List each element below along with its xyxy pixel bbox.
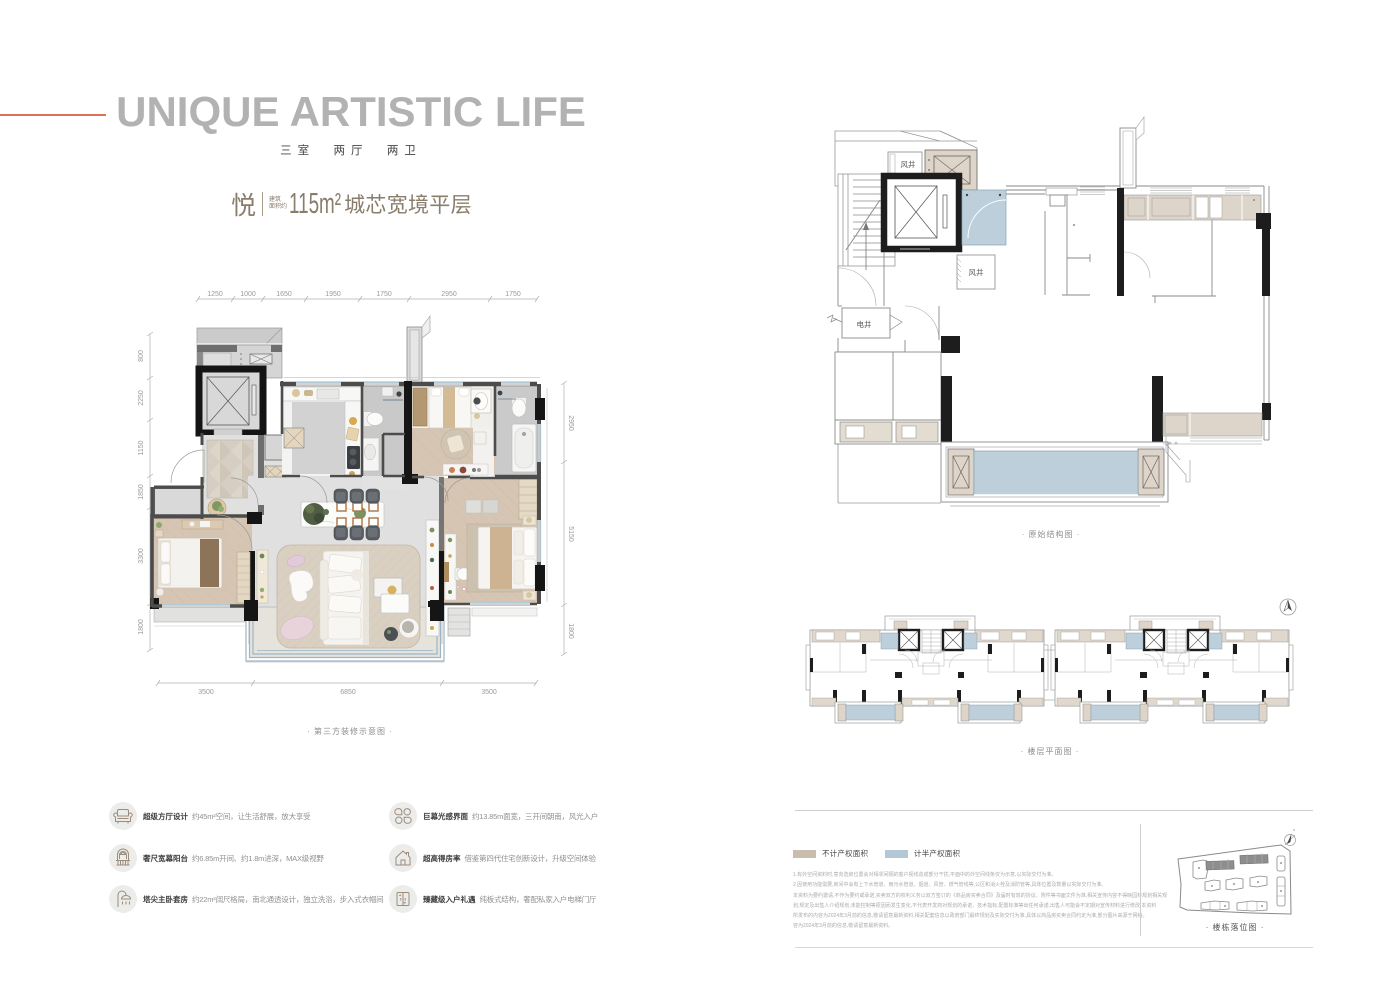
- svg-text:5150: 5150: [567, 526, 574, 542]
- svg-text:3500: 3500: [481, 689, 497, 695]
- svg-text:1800: 1800: [567, 623, 574, 639]
- svg-text:3500: 3500: [198, 689, 214, 695]
- svg-text:1000: 1000: [240, 291, 256, 298]
- svg-text:6850: 6850: [340, 689, 356, 695]
- svg-text:3300: 3300: [138, 548, 145, 564]
- svg-text:风井: 风井: [969, 267, 984, 277]
- svg-text:1800: 1800: [138, 619, 145, 635]
- svg-text:1650: 1650: [276, 291, 292, 298]
- svg-text:1850: 1850: [138, 484, 145, 500]
- svg-text:1750: 1750: [376, 291, 392, 298]
- svg-text:电井: 电井: [857, 319, 872, 329]
- svg-text:1750: 1750: [505, 291, 521, 298]
- svg-text:2950: 2950: [567, 415, 574, 431]
- svg-text:2950: 2950: [441, 291, 457, 298]
- svg-text:2250: 2250: [138, 390, 145, 406]
- svg-text:800: 800: [138, 350, 145, 362]
- svg-text:1150: 1150: [138, 440, 145, 455]
- svg-text:1250: 1250: [207, 291, 223, 298]
- svg-text:1950: 1950: [325, 291, 341, 298]
- svg-text:风井: 风井: [901, 159, 916, 169]
